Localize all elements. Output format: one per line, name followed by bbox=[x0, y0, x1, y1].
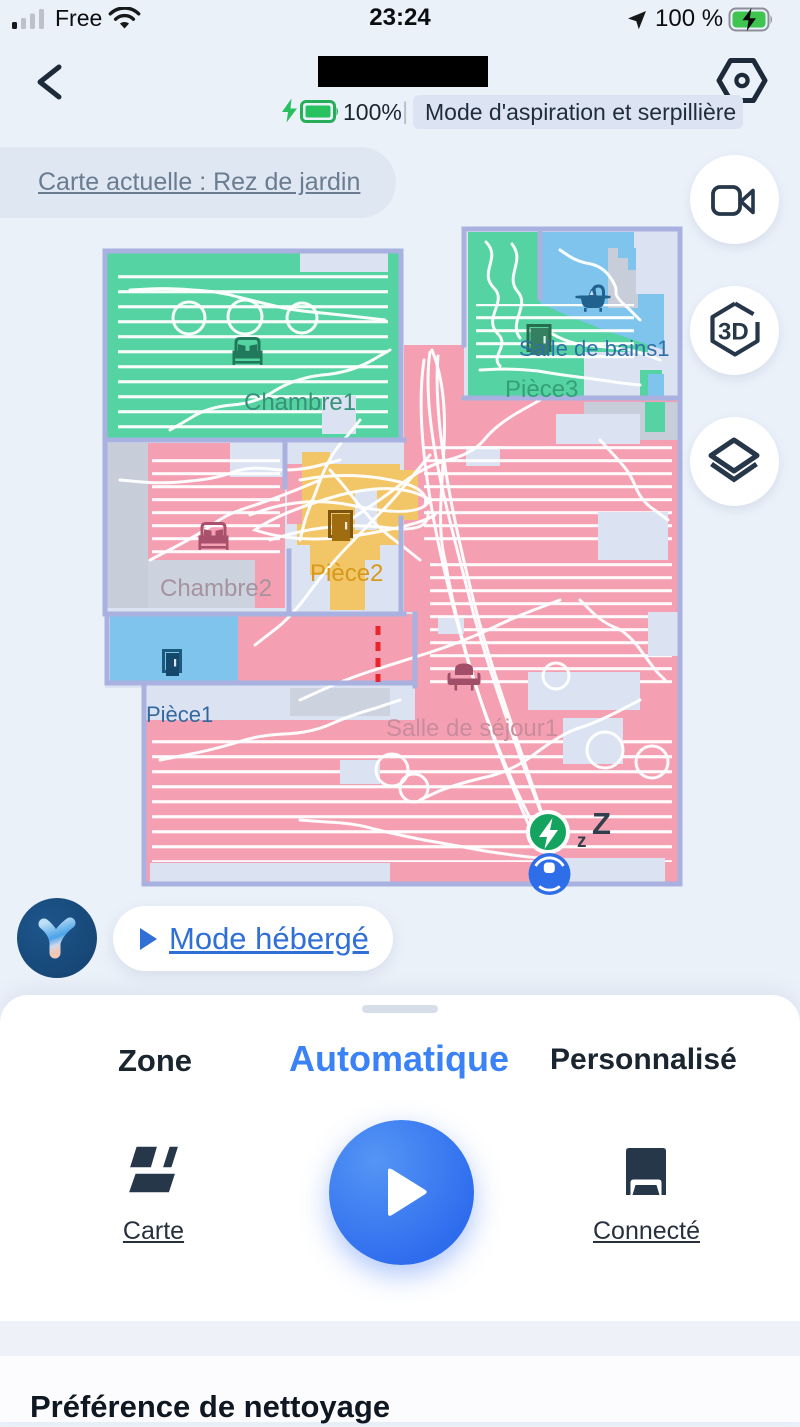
svg-text:z: z bbox=[577, 831, 587, 852]
svg-text:Pièce2: Pièce2 bbox=[310, 560, 383, 587]
svg-text:Salle de bains1: Salle de bains1 bbox=[519, 336, 669, 361]
svg-text:Chambre2: Chambre2 bbox=[160, 575, 272, 602]
svg-text:3D: 3D bbox=[718, 319, 749, 346]
svg-text:Chambre1: Chambre1 bbox=[244, 389, 356, 416]
svg-text:Pièce1: Pièce1 bbox=[146, 702, 213, 727]
svg-text:Salle de séjour1: Salle de séjour1 bbox=[386, 715, 558, 742]
svg-text:Z: Z bbox=[592, 806, 611, 841]
svg-text:Pièce3: Pièce3 bbox=[505, 376, 578, 403]
